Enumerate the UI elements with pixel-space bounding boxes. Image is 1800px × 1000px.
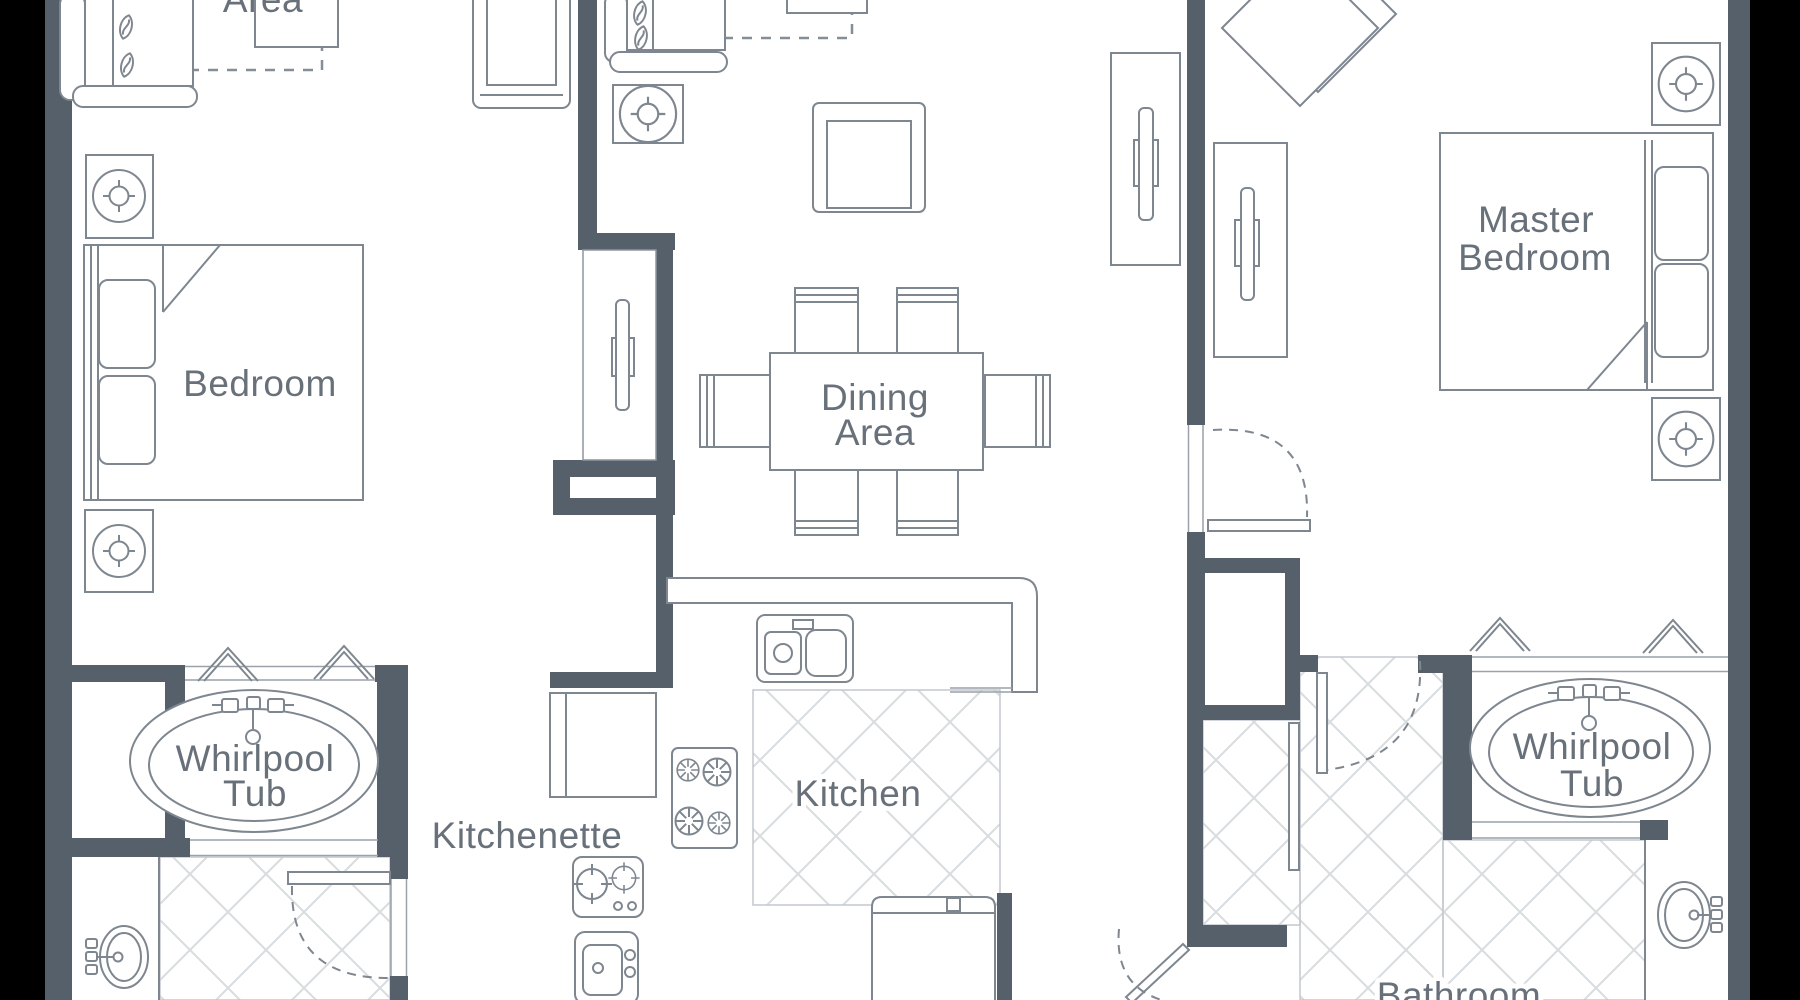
whirlpool-left-label-line2: Tub	[223, 773, 287, 814]
door-leaf-hall	[1317, 673, 1327, 773]
nightstand-lamp-bottom	[85, 510, 153, 592]
lamp-table	[613, 85, 683, 143]
wall-kitchen-stub	[997, 893, 1012, 1000]
kitchen-cooktop	[672, 748, 737, 848]
wall-master-divider-top	[1187, 0, 1205, 425]
bedroom-label: Bedroom	[183, 363, 337, 404]
sofa-living	[605, 0, 727, 72]
nightstand	[85, 510, 153, 592]
wall-right-tubroom-bottom	[1640, 820, 1668, 840]
dining-chair-bottom-2	[897, 470, 958, 535]
floorplan-canvas: Area Bedroom	[0, 0, 1800, 1000]
wall-bedroom-divider-top	[578, 0, 597, 235]
wall-left-bath-top-east	[378, 838, 408, 857]
wall-right-tubroom-left	[1443, 673, 1472, 840]
dining-label-line2: Area	[835, 412, 915, 453]
sliding-door-closet	[1289, 723, 1299, 870]
armchair-outline	[813, 103, 925, 212]
tv-icon	[616, 300, 629, 410]
wall-outer-left	[45, 0, 72, 1000]
wall-hall-bottom	[1187, 925, 1287, 947]
closet-interior	[1205, 573, 1285, 705]
wall-left-bath-doorjamb-bottom	[390, 976, 408, 1000]
dining-chair-right	[985, 375, 1050, 447]
tv-cabinet	[583, 250, 656, 460]
kitchen-label: Kitchen	[795, 773, 922, 814]
dining-chair-bottom-1	[795, 470, 858, 535]
dining-chair-top-1	[795, 288, 858, 353]
bathroom-label: Bathroom	[1377, 975, 1541, 1000]
armchair-dining	[813, 103, 925, 212]
door-leaf-master	[1208, 520, 1310, 531]
kitchen-range	[872, 897, 995, 1000]
floorplan-drawing: Area Bedroom	[0, 0, 1800, 1000]
nightstand-lamp-master-top	[1652, 43, 1720, 125]
wall-bedroom-divider-jog	[578, 233, 675, 250]
sofa-living-arm	[610, 52, 727, 72]
kitchenette-fridge	[550, 693, 656, 797]
sofa-left-back	[60, 0, 85, 100]
kitchen-sink	[757, 615, 853, 682]
tv-icon	[1241, 188, 1254, 300]
kitchenette-sink	[575, 932, 638, 1000]
wall-hall-door-stub	[1300, 655, 1318, 672]
sofa-left-arm	[73, 86, 197, 107]
armchair-left-unit	[473, 0, 570, 108]
dresser-tv-dining-side	[1111, 53, 1180, 265]
side-table-living	[787, 0, 867, 13]
wall-left-bath-top-west	[72, 838, 190, 857]
tv-icon	[1139, 108, 1153, 220]
nightstand-lamp-master-bottom	[1652, 398, 1720, 480]
wall-left-tubroom-east	[375, 665, 408, 682]
sitting-area-label: Area	[223, 0, 303, 20]
wall-outer-right	[1728, 0, 1750, 1000]
armchair-seat	[487, 0, 556, 85]
lamp-table-living	[613, 85, 683, 143]
wall-left-bath-doorjamb-top	[390, 857, 408, 879]
master-label-line2: Bedroom	[1458, 237, 1612, 278]
wall-master-divider-mid	[1187, 532, 1205, 562]
pocket-slot	[570, 477, 656, 498]
wall-left-tubroom-right	[377, 682, 408, 857]
dining-chair-top-2	[897, 288, 958, 353]
whirlpool-right-label-line2: Tub	[1560, 763, 1624, 804]
door-leaf-left-bath	[288, 872, 390, 884]
nightstand	[1652, 43, 1720, 125]
wall-left-tubroom-west	[72, 665, 185, 682]
nightstand	[1652, 398, 1720, 480]
whirlpool-right-label-line1: Whirlpool	[1513, 726, 1672, 767]
kitchenette-cooktop	[572, 857, 643, 917]
wall-hall-door-strike	[1418, 655, 1472, 673]
wall-kitchenette-jog	[550, 672, 673, 688]
sofa-left-cushions	[85, 0, 113, 86]
wall-tv-cabinet-side	[656, 248, 673, 462]
letterbox-right	[1750, 0, 1800, 1000]
nightstand	[86, 155, 153, 238]
letterbox-left	[0, 0, 45, 1000]
wall-hall-left	[1187, 720, 1203, 925]
dining-chair-left	[700, 375, 770, 447]
right-hall-tile-floor	[1203, 720, 1300, 925]
master-label-line1: Master	[1478, 199, 1594, 240]
nightstand-lamp-top	[86, 155, 153, 238]
dresser-tv-master	[1214, 143, 1287, 357]
kitchenette-label: Kitchenette	[432, 815, 623, 856]
sofa-living-seat	[653, 0, 725, 50]
